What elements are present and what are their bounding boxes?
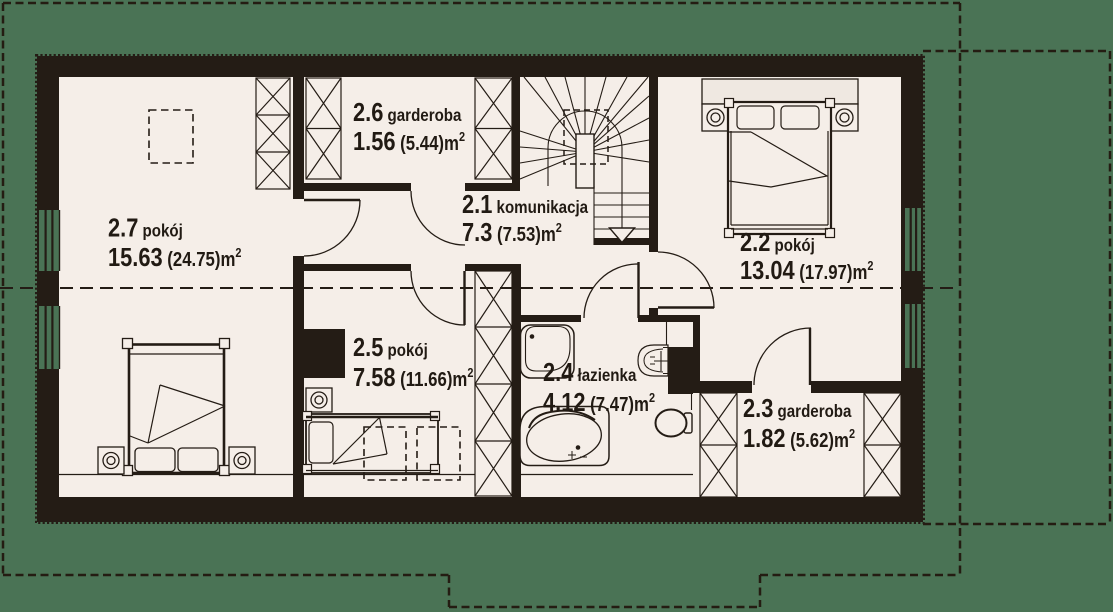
svg-text:15.63 (24.75)m2: 15.63 (24.75)m2 (108, 243, 242, 272)
svg-text:1.56 (5.44)m2: 1.56 (5.44)m2 (353, 127, 465, 156)
svg-text:4.12 (7.47)m2: 4.12 (7.47)m2 (543, 388, 655, 417)
svg-text:13.04 (17.97)m2: 13.04 (17.97)m2 (740, 256, 874, 285)
svg-text:7.3 (7.53)m2: 7.3 (7.53)m2 (462, 218, 562, 247)
svg-text:7.58 (11.66)m2: 7.58 (11.66)m2 (353, 363, 474, 392)
svg-text:1.82 (5.62)m2: 1.82 (5.62)m2 (743, 424, 855, 453)
